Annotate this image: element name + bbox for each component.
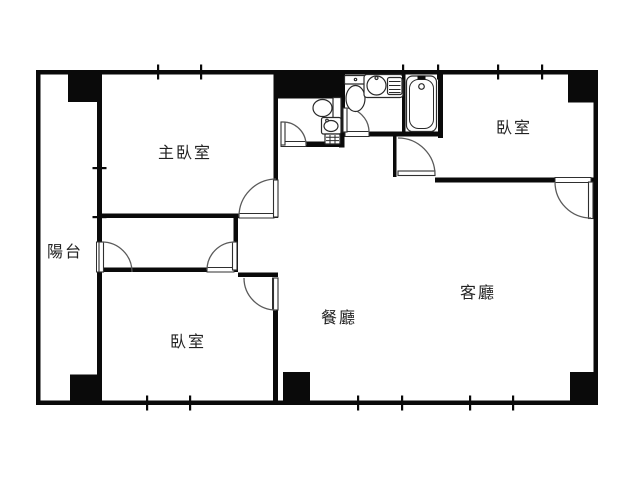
vanity-small-bath-icon — [322, 118, 342, 145]
stove-rack-icon — [388, 78, 403, 95]
column-top-left — [68, 74, 100, 102]
room-label-bedroom-upper-right: 臥室 — [496, 114, 532, 138]
toilet-small-bath-icon — [313, 98, 341, 119]
column-bottom-center — [283, 372, 310, 401]
window-tick-marks — [93, 65, 544, 411]
toilet-main-bath-icon — [345, 76, 367, 112]
floor-plan-drawing — [0, 0, 640, 480]
column-bottom-right — [570, 372, 598, 401]
entry-nook-door — [398, 138, 435, 176]
room-label-bedroom-lower-left: 臥室 — [170, 328, 206, 352]
room-label-dining-room: 餐廳 — [321, 304, 357, 328]
entry-nook-spur-wall — [393, 133, 397, 177]
bathtub-icon — [407, 76, 437, 132]
column-bottom-left — [70, 375, 100, 402]
structural-wall-block — [278, 74, 343, 99]
room-label-living-room: 客廳 — [460, 279, 496, 303]
room-label-balcony: 陽台 — [47, 238, 83, 262]
column-top-right — [568, 74, 595, 103]
corridor-bedroom-door — [207, 242, 237, 270]
master-bedroom-door — [239, 179, 278, 217]
bedroom-upper-right-door — [555, 182, 593, 219]
room-label-master-bedroom: 主臥室 — [158, 139, 212, 163]
floor-plan-canvas: 陽台 主臥室 臥室 臥室 餐廳 客廳 — [0, 0, 640, 480]
